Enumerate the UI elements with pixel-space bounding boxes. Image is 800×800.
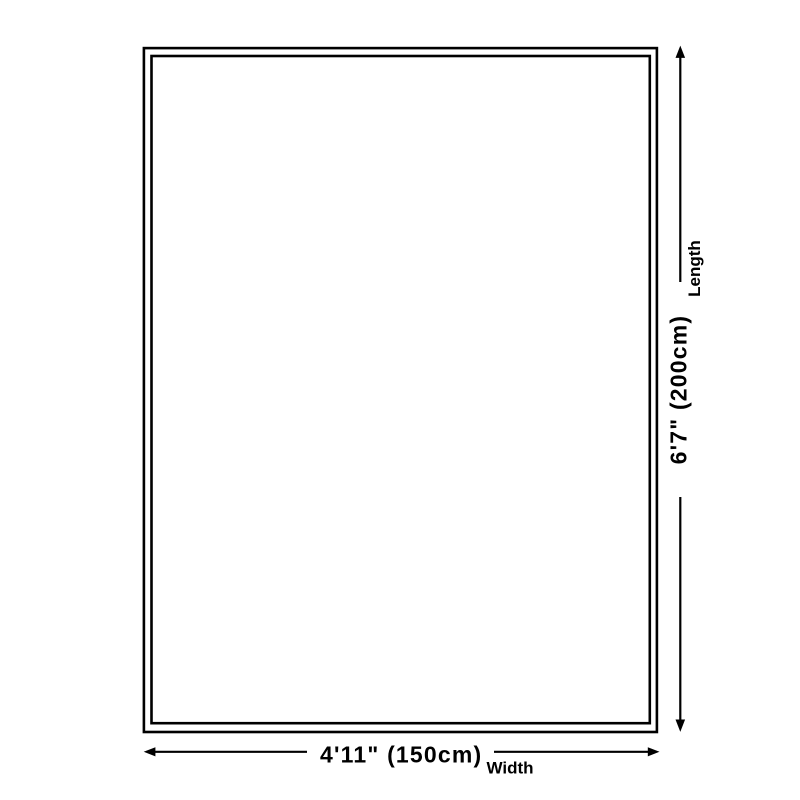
svg-text:6'7" (200cm): 6'7" (200cm) — [666, 315, 692, 465]
svg-text:4'11" (150cm): 4'11" (150cm) — [320, 741, 482, 767]
svg-text:Width: Width — [487, 759, 534, 778]
svg-text:Length: Length — [685, 240, 704, 297]
